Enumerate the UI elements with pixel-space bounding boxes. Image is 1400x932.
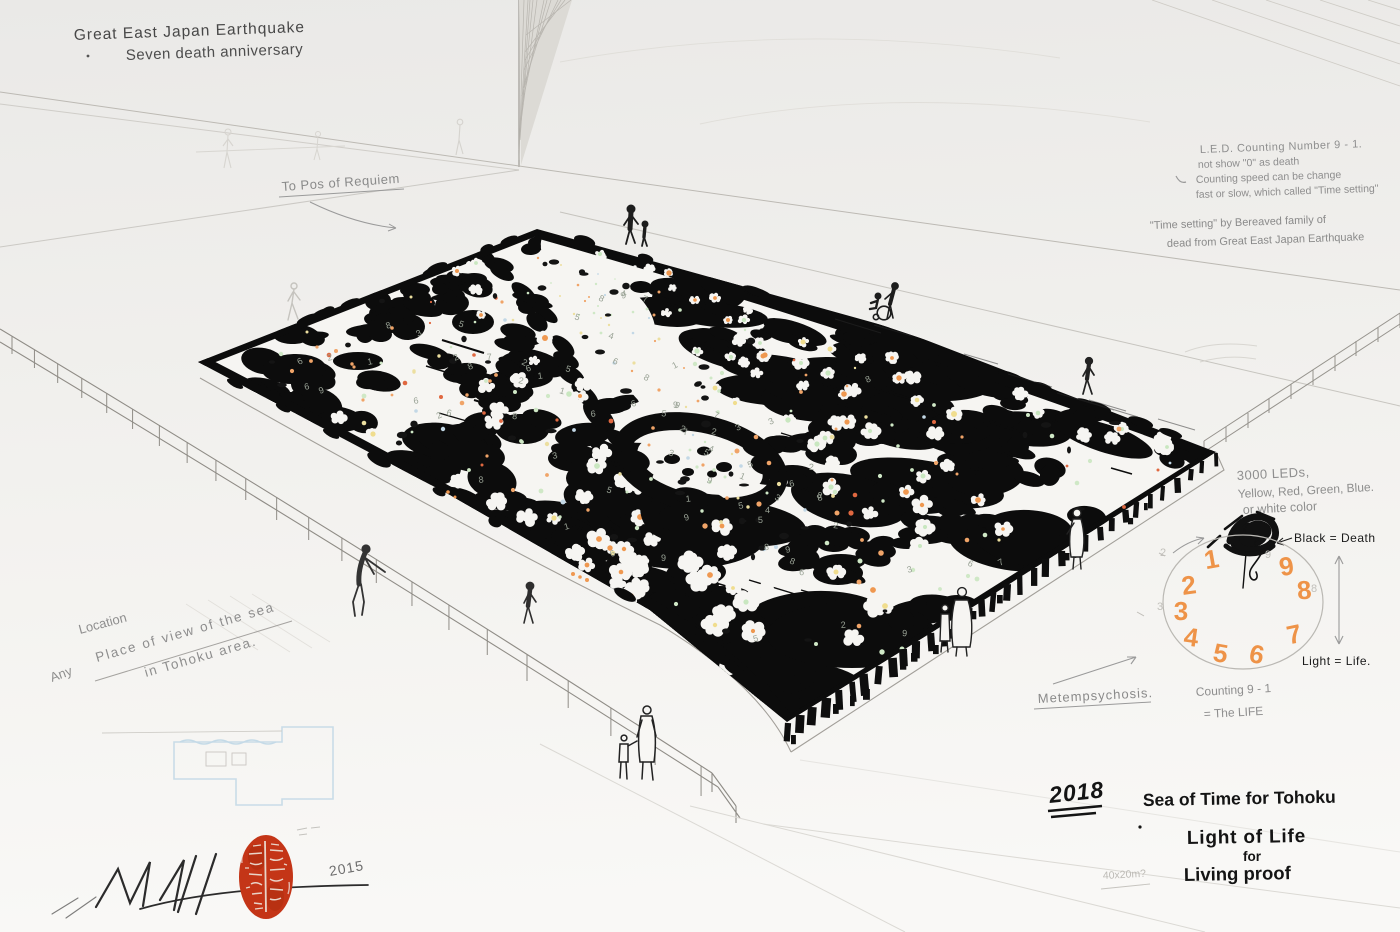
- svg-text:6: 6: [799, 567, 805, 577]
- svg-text:3: 3: [1157, 601, 1163, 613]
- svg-text:Sea of Time for Tohoku: Sea of Time for Tohoku: [1143, 787, 1336, 810]
- svg-text:5: 5: [758, 515, 763, 525]
- svg-text:8: 8: [1311, 583, 1317, 595]
- svg-text:9: 9: [661, 553, 666, 563]
- svg-text:9: 9: [1265, 549, 1271, 561]
- svg-text:8: 8: [512, 411, 518, 421]
- svg-text:Light = Life.: Light = Life.: [1302, 654, 1371, 668]
- svg-text:9: 9: [673, 400, 678, 410]
- svg-text:Black = Death: Black = Death: [1294, 531, 1376, 545]
- svg-text:8: 8: [764, 542, 769, 552]
- svg-text:2: 2: [809, 462, 814, 472]
- svg-text:Living proof: Living proof: [1184, 862, 1292, 885]
- svg-text:9: 9: [902, 628, 908, 638]
- svg-text:2: 2: [1160, 547, 1166, 559]
- svg-text:4: 4: [765, 505, 770, 515]
- svg-text:40x20m?: 40x20m?: [1103, 868, 1147, 882]
- svg-text:Light of Life: Light of Life: [1187, 826, 1306, 849]
- svg-text:2: 2: [840, 620, 846, 630]
- svg-text:7: 7: [486, 352, 492, 362]
